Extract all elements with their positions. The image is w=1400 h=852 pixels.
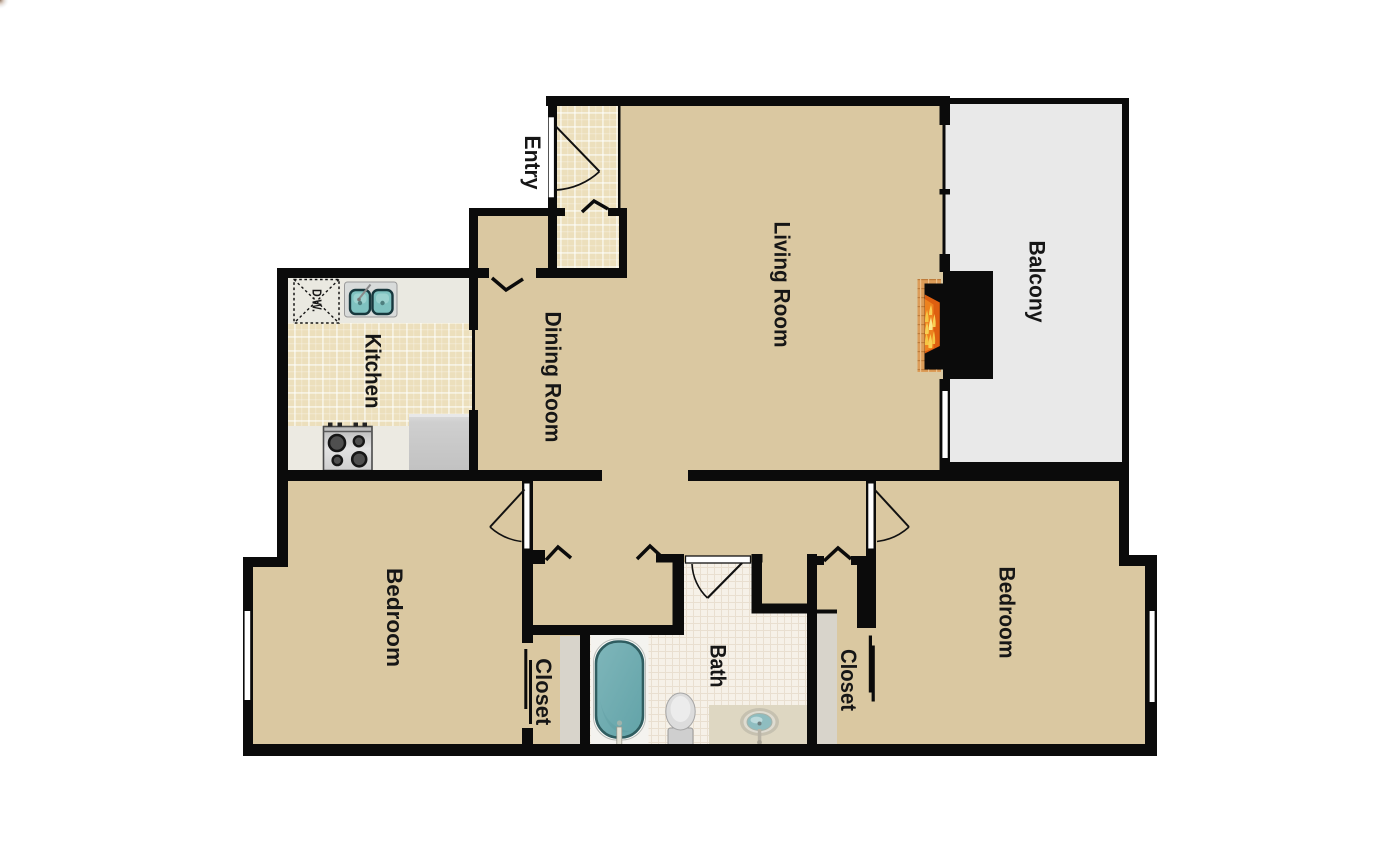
svg-text:Bedroom: Bedroom [382,568,407,667]
svg-text:Dining Room: Dining Room [541,312,566,443]
svg-text:Living Room: Living Room [770,222,795,348]
svg-text:Balcony: Balcony [1025,241,1050,324]
svg-text:Kitchen: Kitchen [361,334,386,409]
svg-text:Bedroom: Bedroom [995,567,1020,659]
svg-text:Closet: Closet [531,658,556,726]
svg-text:Bath: Bath [706,645,731,688]
svg-text:Entry: Entry [520,136,545,191]
svg-text:D.W.: D.W. [310,289,325,312]
svg-text:Closet: Closet [836,649,861,712]
